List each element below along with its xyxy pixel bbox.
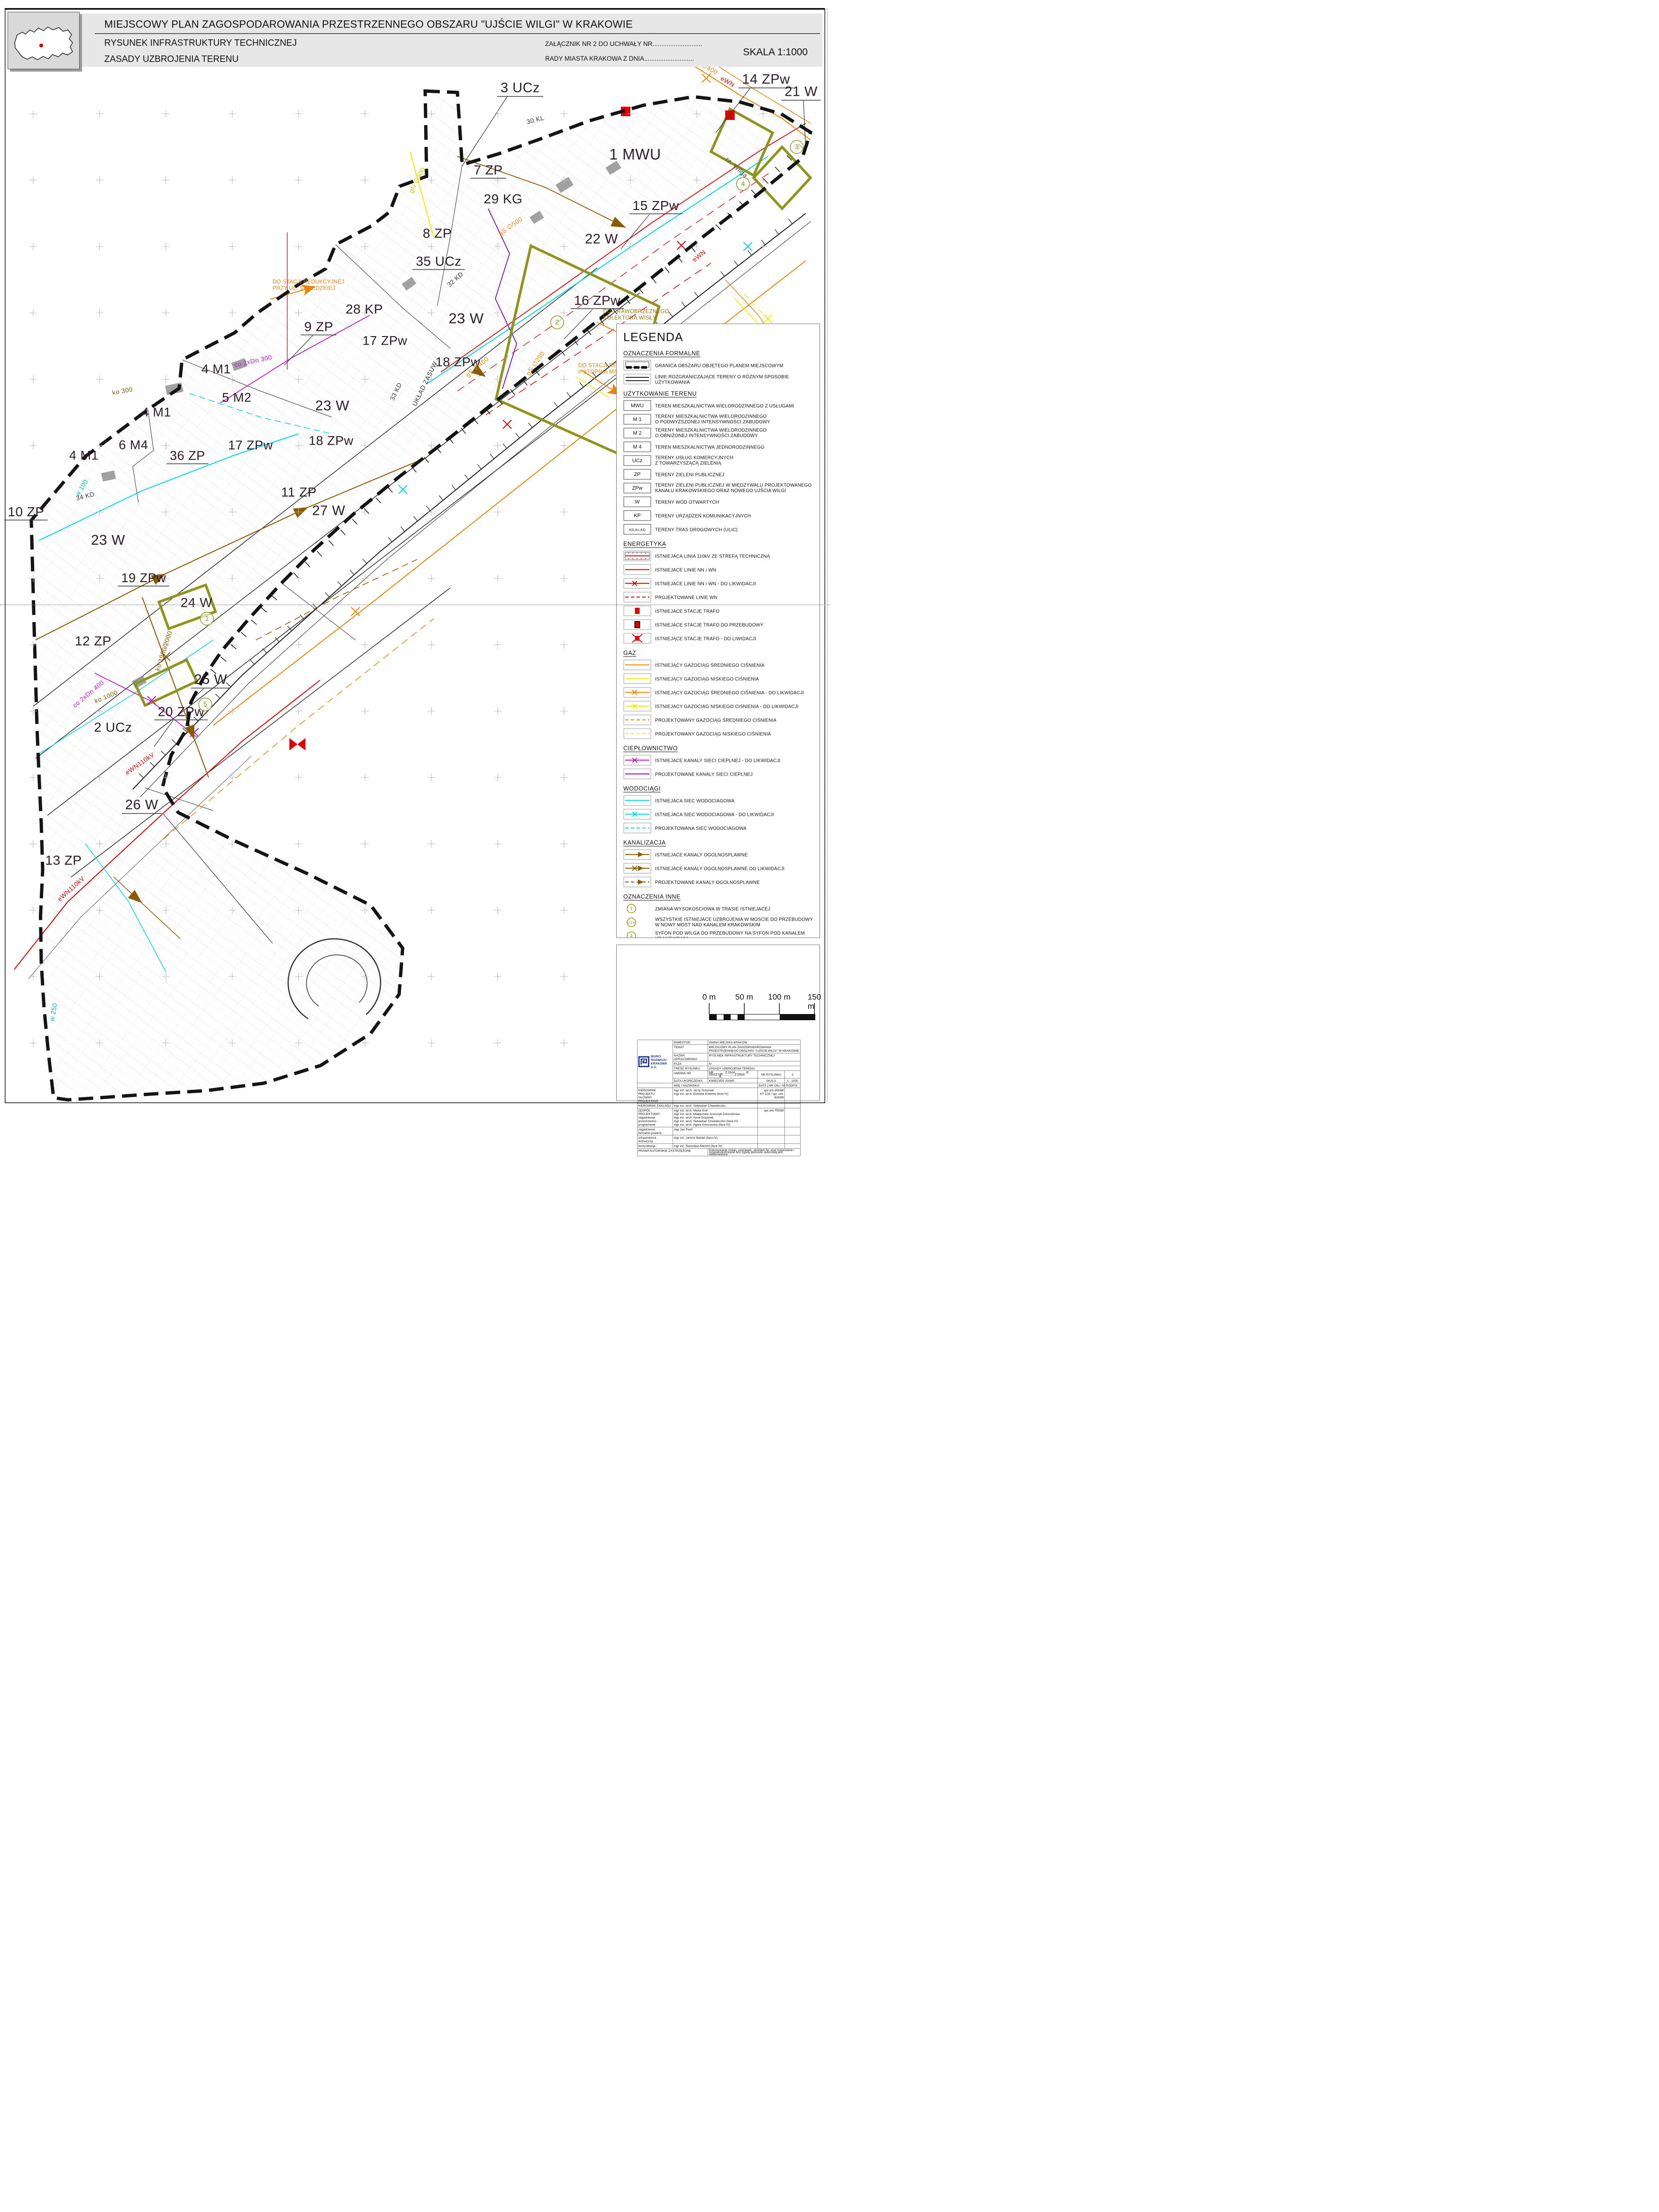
titleblock-cell: BIUROROZWOJUKRAKOWA S.A. bbox=[637, 1040, 673, 1083]
legend-item: PROJEKTOWANE LINIE WN bbox=[623, 592, 815, 604]
titleblock-cell: GMINA MIEJSKA KRAKÓW bbox=[708, 1040, 800, 1045]
legend-item: KPTERENY URZĄDZEŃ KOMUNIKACYJNYCH bbox=[623, 510, 815, 522]
svg-text:W: W bbox=[635, 499, 640, 505]
legend-item: PROJEKTOWANA SIEC WODOCIAGOWA bbox=[623, 823, 815, 835]
titleblock-cell bbox=[757, 1127, 785, 1135]
titleblock-cell bbox=[785, 1127, 801, 1135]
plan-location-dot bbox=[39, 44, 43, 47]
titleblock-panel: 0 m50 m100 m150 m BIUROROZWOJUKRAKOWA S.… bbox=[616, 945, 820, 1101]
legend-item-label: ISTNIEJACE KANALY SIECI CIEPLNEJ - DO LI… bbox=[655, 758, 780, 764]
legend-item: M 1TERENY MIESZKALNICTWA WIELORODZINNEGO… bbox=[623, 414, 815, 426]
titleblock-cell bbox=[757, 1135, 785, 1144]
legend-item: ISTNIEJACE KANALY OGOLNOSPLAWNE bbox=[623, 849, 815, 861]
legend-symbol-line bbox=[623, 755, 651, 767]
legend-symbol-zone-KP: KP bbox=[623, 510, 651, 522]
legend-symbol-sepline bbox=[623, 374, 651, 386]
scale-bar-segments bbox=[709, 1014, 815, 1020]
legend-symbol-line bbox=[623, 550, 651, 563]
titleblock-cell: DATA UKOŃCZENIA bbox=[673, 1079, 708, 1083]
legend-symbol-badge-1: 1 bbox=[623, 903, 651, 915]
titleblock-cell: NR ............ Z DNIA ............R. OR… bbox=[708, 1071, 757, 1079]
legend-symbol-line bbox=[623, 863, 651, 875]
titleblock-cell: mgr Jan Pach bbox=[673, 1127, 757, 1135]
legend-item: MWUTEREN MIESZKALNICTWA WIELORODZINNEGO … bbox=[623, 400, 815, 412]
svg-text:4: 4 bbox=[630, 934, 632, 938]
legend-item-label: PROJEKTOWANY GAZOCIĄG ŚREDNIEGO CIŚNIENI… bbox=[655, 718, 776, 723]
legend-item-label: SYFON POD WILGA DO PRZEBUDOWY NA SYFON P… bbox=[655, 931, 815, 938]
legend-item-label: PROJEKTOWANE KANALY OGOLNOSPLAWNE bbox=[655, 880, 760, 886]
legend-item: WTERENY WÓD OTWARTYCH bbox=[623, 496, 815, 509]
legend-item: ISTNIEJACA SIEC WODOCIAGOWA - DO LIKWIDA… bbox=[623, 809, 815, 821]
titleblock-cell: Dokonywanie zmian, poprawek, skreśleń it… bbox=[708, 1148, 800, 1156]
titleblock-cell bbox=[785, 1108, 801, 1127]
legend-symbol-zone-M 1: M 1 bbox=[623, 414, 651, 426]
legend-item-label: TERENY URZĄDZEŃ KOMUNIKACYJNYCH bbox=[655, 513, 751, 519]
legend-section-title: GAZ bbox=[623, 650, 815, 657]
titleblock-cell: KIEROWNIK PROJEKTU GŁÓWNY PROJEKTANT bbox=[637, 1088, 673, 1104]
titleblock-cell: ZESPÓŁ PROJEKTOWY: zagadnienia przestrze… bbox=[637, 1108, 673, 1127]
titleblock-cell: komunikacja bbox=[637, 1143, 673, 1148]
legend-item: PROJEKTOWANE KANALY OGOLNOSPLAWNE bbox=[623, 877, 815, 889]
legend-item-label: ISTNIEJACY GAZOCIAG NISKIEGO CISNIENIA -… bbox=[655, 704, 799, 710]
titleblock-cell: DATA | NR OIU / NR UPRAWNIEŃ bbox=[757, 1083, 785, 1088]
legend-symbol-line bbox=[623, 795, 651, 807]
scale-bar-tick bbox=[709, 1003, 710, 1014]
scale-bar-tick bbox=[744, 1003, 745, 1014]
legend-item-label: PROJEKTOWANA SIEC WODOCIAGOWA bbox=[655, 826, 747, 832]
header-top-rule bbox=[5, 8, 825, 10]
titleblock-cell bbox=[637, 1083, 673, 1088]
legend-item: ISTNIEJACE KANALY OGOLNOSPLAWNE DO LIKWI… bbox=[623, 863, 815, 875]
krakow-outline bbox=[15, 27, 73, 60]
legend-item: ISTNIEJĄCE STACJE TRAFO - DO LIWIDACJI bbox=[623, 633, 815, 645]
titleblock-cell: KIEROWNIK ZAKŁADU bbox=[637, 1103, 673, 1108]
legend-item: PROJEKTOWANY GAZOCIĄG ŚREDNIEGO CIŚNIENI… bbox=[623, 714, 815, 727]
titleblock-table-wrap: BIUROROZWOJUKRAKOWA S.A.INWESTORGMINA MI… bbox=[637, 1040, 800, 1156]
titleblock-cell bbox=[757, 1143, 785, 1148]
titleblock-cell bbox=[785, 1088, 801, 1104]
titleblock-cell: mgr inż. arch. Jerzy Grzymek mgr inż. ar… bbox=[673, 1088, 757, 1104]
legend-symbol-trafo3 bbox=[623, 633, 651, 645]
titleblock-cell: NR RYSUNKU bbox=[757, 1071, 785, 1079]
legend-symbol-line bbox=[623, 659, 651, 672]
sheet-subtitle-2: ZASADY UZBROJENIA TERENU bbox=[104, 54, 238, 64]
legend-symbol-zone-MWU: MWU bbox=[623, 400, 651, 412]
legend-item-label: ISTNIEJACE LINIE NN i WN bbox=[655, 567, 716, 573]
titleblock-cell: ZASADY UZBROJENIA TERENU bbox=[708, 1066, 800, 1071]
sheet-subtitle-1: RYSUNEK INFRASTRUKTURY TECHNICZNEJ bbox=[104, 38, 297, 48]
legend-item: ISTNIEJACE KANALY SIECI CIEPLNEJ - DO LI… bbox=[623, 755, 815, 767]
legend-item: ISTNIEJACA LINIA 110kV ZE STREFĄ TECHNIC… bbox=[623, 550, 815, 563]
legend-item: ISTNIEJACE STACJE TRAFO DO PRZEBUDOWY bbox=[623, 619, 815, 631]
legend-item: ISTNIEJACA SIEC WODOCIAGOWA bbox=[623, 795, 815, 807]
titleblock-cell bbox=[757, 1103, 785, 1108]
legend-item-label: TERENY WÓD OTWARTYCH bbox=[655, 500, 719, 505]
legend-item: ISTNIEJACE LINIE NN i WN - DO LIKWIDACJI bbox=[623, 578, 815, 590]
legend-item-label: ISTNIEJĄCY GAZOCIĄG ŚREDNIEGO CIŚNIENIA … bbox=[655, 690, 804, 696]
titleblock-cell: TEMAT bbox=[673, 1045, 708, 1053]
legend-symbol-zone-W: W bbox=[623, 496, 651, 509]
legend-item-label: ISTNIEJACE STACJE TRAFO DO PRZEBUDOWY bbox=[655, 622, 764, 628]
legend-item: UCzTERENY USŁUG KOMERCYJNYCH Z TOWARZYSZ… bbox=[623, 455, 815, 467]
legend-symbol-trafo2 bbox=[623, 619, 651, 631]
legend-symbol-line bbox=[623, 728, 651, 740]
legend-section-title: ENERGETYKA bbox=[623, 541, 815, 548]
legend-symbol-boundary bbox=[623, 360, 651, 372]
titleblock-cell: TREŚĆ RYSUNKU bbox=[673, 1066, 708, 1071]
legend-symbol-line bbox=[623, 564, 651, 576]
legend-item-label: ISTNIEJACE STACJE TRAFO bbox=[655, 609, 720, 614]
legend-symbol-line bbox=[623, 578, 651, 590]
legend-item: 4SYFON POD WILGA DO PRZEBUDOWY NA SYFON … bbox=[623, 931, 815, 938]
legend-panel: LEGENDA OZNACZENIA FORMALNEGRANICA OBSZA… bbox=[616, 324, 820, 938]
legend-item: M 4TEREN MIESZKALNICTWA JEDNORODZINNEGO bbox=[623, 441, 815, 454]
scale-text: SKALA 1:1000 bbox=[743, 46, 808, 58]
titleblock-cell: infrastruktura techniczna bbox=[637, 1135, 673, 1144]
legend-symbol-badge-2,3,5: 2,3,5 bbox=[623, 917, 651, 929]
plan-sheet: 3 UCz14 ZPw21 W1 MWU7 ZP29 KG15 ZPw8 ZP2… bbox=[0, 0, 829, 1106]
sheet-title: MIEJSCOWY PLAN ZAGOSPODAROWANIA PRZESTRZ… bbox=[104, 18, 633, 30]
legend-symbol-line bbox=[623, 687, 651, 699]
svg-text:ZP: ZP bbox=[634, 472, 640, 477]
titleblock-cell: mgr inż. arch. Marta Król mgr inż. arch.… bbox=[673, 1108, 757, 1127]
legend-symbol-badge-4: 4 bbox=[623, 931, 651, 938]
legend-section-title: WODOCIĄGI bbox=[623, 786, 815, 793]
titleblock-cell: 2 bbox=[785, 1071, 801, 1079]
svg-text:KG,KL,KD: KG,KL,KD bbox=[629, 528, 646, 532]
titleblock-cell: PRAWA AUTORSKIE ZASTRZEŻONE bbox=[637, 1148, 708, 1156]
attachment-line-1: ZAŁĄCZNIK NR 2 DO UCHWAŁY NR............… bbox=[545, 40, 702, 48]
scale-bar-label: 50 m bbox=[735, 993, 753, 1002]
titleblock-cell: IMIĘ I NAZWISKO: bbox=[673, 1083, 757, 1088]
legend-item: M 2TERENY MIESZ­KALNICTWA WIELORODZINNEG… bbox=[623, 428, 815, 440]
svg-text:M 2: M 2 bbox=[633, 430, 641, 436]
scale-bar-tick bbox=[814, 1003, 815, 1014]
legend-symbol-line bbox=[623, 768, 651, 781]
titleblock-cell bbox=[785, 1135, 801, 1144]
legend-item-label: PROJEKTOWANY GAZOCIĄG NISKIEGO CIŚNIENIA bbox=[655, 731, 771, 737]
legend-item-label: ISTNIEJACA LINIA 110kV ZE STREFĄ TECHNIC… bbox=[655, 554, 770, 559]
legend-symbol-zone-ZPw: ZPw bbox=[623, 483, 651, 495]
titleblock-cell: mgr inż. Janusz Bardel (faza IV) bbox=[673, 1135, 757, 1144]
legend-section-title: KANALIZACJA bbox=[623, 840, 815, 847]
svg-text:UCz: UCz bbox=[632, 458, 642, 464]
titleblock-cell: FAZA bbox=[673, 1061, 708, 1066]
legend-item-label: ISTNIEJACE LINIE NN i WN - DO LIKWIDACJI bbox=[655, 581, 756, 587]
svg-text:ZPw: ZPw bbox=[632, 485, 643, 491]
titleblock-cell: PODPIS bbox=[785, 1083, 801, 1088]
legend-symbol-zone-M 4: M 4 bbox=[623, 441, 651, 454]
legend-item-label: TERENY ZIELENI PUBLICZNEJ W MIĘDZYWALU P… bbox=[655, 483, 811, 494]
svg-text:2,3,5: 2,3,5 bbox=[628, 922, 635, 925]
svg-text:1: 1 bbox=[630, 906, 632, 911]
titleblock-cell: INWESTOR bbox=[673, 1040, 708, 1045]
legend-item: LINIE ROZGRANICZAJĄCE TERENY O RÓŻNYM SP… bbox=[623, 374, 815, 386]
titleblock-cell: KWIECIEŃ 2006R. bbox=[708, 1079, 757, 1083]
legend-item-label: ZMIANA WYSOKOSCIOWA W TRASIE ISTNIEJACEJ bbox=[655, 906, 770, 912]
legend-section-title: OZNACZENIA FORMALNE bbox=[623, 350, 815, 357]
scale-bar-label: 100 m bbox=[768, 993, 790, 1002]
header-separator-rule bbox=[95, 33, 820, 34]
legend-symbol-zone-KG,KL,KD: KG,KL,KD bbox=[623, 524, 651, 536]
legend-symbol-zone-M 2: M 2 bbox=[623, 428, 651, 440]
titleblock-cell: SKALA bbox=[757, 1079, 785, 1083]
legend-item: ISTNIEJACE LINIE NN i WN bbox=[623, 564, 815, 576]
legend-item-label: WSZYSTKIE ISTNIEJACE UZBROJENIA W MOSCIE… bbox=[655, 917, 813, 928]
legend-section-title: CIEPŁOWNICTWO bbox=[623, 745, 815, 752]
legend-section-title: UŻYTKOWANIE TERENU bbox=[623, 391, 815, 398]
legend-title: LEGENDA bbox=[623, 330, 815, 344]
titleblock-cell: NAZWA OPRACOWANIA bbox=[673, 1053, 708, 1061]
svg-text:KP: KP bbox=[634, 513, 641, 519]
titleblock-cell: mgr inż. Stanisław Albricht (faza IV) bbox=[673, 1143, 757, 1148]
titleblock-cell bbox=[785, 1143, 801, 1148]
legend-item-label: ISTNIEJACE KANALY OGOLNOSPLAWNE DO LIKWI… bbox=[655, 866, 784, 872]
legend-item-label: ISTNIEJĄCE STACJE TRAFO - DO LIWIDACJI bbox=[655, 636, 756, 642]
titleblock-cell: MIEJSCOWY PLAN ZAGOSPODAROWANIA PRZESTRZ… bbox=[708, 1045, 800, 1053]
titleblock-cell: UMOWA NR bbox=[673, 1071, 708, 1079]
legend-symbol-line bbox=[623, 673, 651, 686]
legend-item-label: LINIE ROZGRANICZAJĄCE TERENY O RÓŻNYM SP… bbox=[655, 374, 815, 385]
legend-item: PROJEKTOWANE KANALY SIECI CIEPLNEJ bbox=[623, 768, 815, 781]
legend-item: PROJEKTOWANY GAZOCIĄG NISKIEGO CIŚNIENIA bbox=[623, 728, 815, 740]
legend-item-label: TERENY ZIELENI PUBLICZNEJ bbox=[655, 472, 724, 478]
titleblock-table: BIUROROZWOJUKRAKOWA S.A.INWESTORGMINA MI… bbox=[637, 1040, 801, 1156]
svg-text:M 1: M 1 bbox=[633, 417, 641, 422]
legend-item: ISTNIEJĄCY GAZOCIĄG ŚREDNIEGO CIŚNIENIA … bbox=[623, 687, 815, 699]
legend-section-title: OZNACZENIA INNE bbox=[623, 894, 815, 901]
legend-item-label: TEREN MIESZKALNICTWA JEDNORODZINNEGO bbox=[655, 445, 765, 450]
legend-symbol-trafo1 bbox=[623, 605, 651, 618]
legend-item: ISTNIEJĄCY GAZOCIĄG NISKIEGO CIŚNIENIA bbox=[623, 673, 815, 686]
legend-symbol-line bbox=[623, 877, 651, 889]
legend-symbol-zone-UCz: UCz bbox=[623, 455, 651, 467]
legend-item-label: TERENY MIESZ­KALNICTWA WIELORODZINNEGO O… bbox=[655, 428, 766, 439]
titleblock-cell: IV bbox=[708, 1061, 800, 1066]
titleblock-cell: upr.urb.755/88 bbox=[757, 1108, 785, 1127]
legend-item-label: ISTNIEJĄCY GAZOCIĄG ŚREDNIEGO CIŚNIENIA bbox=[655, 663, 765, 668]
titleblock-cell: zagadnienia formalno-prawne bbox=[637, 1127, 673, 1135]
titleblock-cell: 1 : 1000 bbox=[785, 1079, 801, 1083]
legend-item: GRANICA OBSZARU OBJĘTEGO PLANEM MIEJSCOW… bbox=[623, 360, 815, 372]
legend-item-label: PROJEKTOWANE KANALY SIECI CIEPLNEJ bbox=[655, 772, 753, 777]
titleblock-cell: RYSUNEK INFRASTRUKTURY TECHNICZNEJ bbox=[708, 1053, 800, 1061]
legend-item-label: ISTNIEJĄCY GAZOCIĄG NISKIEGO CIŚNIENIA bbox=[655, 676, 759, 682]
titleblock-cell: mgr inż. arch. Sebastian Chwedeczko bbox=[673, 1103, 757, 1108]
legend-symbol-line bbox=[623, 809, 651, 821]
legend-item-label: TERENY MIESZKALNICTWA WIELORODZINNEGO O … bbox=[655, 414, 770, 425]
svg-text:MWU: MWU bbox=[631, 403, 644, 409]
legend-item-label: TERENY TRAS DROGOWYCH (ULIC) bbox=[655, 527, 738, 533]
legend-symbol-line bbox=[623, 592, 651, 604]
attachment-line-2: RADY MIASTA KRAKOWA Z DNIA..............… bbox=[545, 55, 694, 63]
legend-symbol-zone-ZP: ZP bbox=[623, 469, 651, 481]
legend-item-label: PROJEKTOWANE LINIE WN bbox=[655, 595, 718, 601]
krakow-locator-minimap bbox=[8, 12, 80, 69]
scale-bar-tick bbox=[779, 1003, 780, 1014]
legend-item: ISTNIEJACY GAZOCIAG NISKIEGO CISNIENIA -… bbox=[623, 701, 815, 713]
legend-item-label: TERENY USŁUG KOMERCYJNYCH Z TOWARZYSZĄCĄ… bbox=[655, 455, 733, 466]
legend-item: ISTNIEJACE STACJE TRAFO bbox=[623, 605, 815, 618]
legend-item: KG,KL,KDTERENY TRAS DROGOWYCH (ULIC) bbox=[623, 524, 815, 536]
legend-item-label: ISTNIEJACA SIEC WODOCIAGOWA bbox=[655, 798, 735, 804]
legend-item: ZPwTERENY ZIELENI PUBLICZNEJ W MIĘDZYWAL… bbox=[623, 483, 815, 495]
legend-symbol-line bbox=[623, 823, 651, 835]
legend-symbol-line bbox=[623, 714, 651, 727]
legend-item-label: ISTNIEJACE KANALY OGOLNOSPLAWNE bbox=[655, 852, 748, 858]
legend-item: ISTNIEJĄCY GAZOCIĄG ŚREDNIEGO CIŚNIENIA bbox=[623, 659, 815, 672]
legend-item: ZPTERENY ZIELENI PUBLICZNEJ bbox=[623, 469, 815, 481]
legend-item: 1ZMIANA WYSOKOSCIOWA W TRASIE ISTNIEJACE… bbox=[623, 903, 815, 915]
legend-item-label: TEREN MIESZKALNICTWA WIELORODZINNEGO Z U… bbox=[655, 403, 794, 409]
titleblock-cell: upr.urb.163/88 KT-128 / upr. urb. 828/89 bbox=[757, 1088, 785, 1104]
legend-symbol-line bbox=[623, 701, 651, 713]
scale-bar-label: 0 m bbox=[702, 993, 716, 1002]
legend-item: 2,3,5WSZYSTKIE ISTNIEJACE UZBROJENIA W M… bbox=[623, 917, 815, 929]
titleblock-cell bbox=[785, 1103, 801, 1108]
legend-item-label: ISTNIEJACA SIEC WODOCIAGOWA - DO LIKWIDA… bbox=[655, 812, 774, 818]
legend-items: OZNACZENIA FORMALNEGRANICA OBSZARU OBJĘT… bbox=[623, 350, 815, 938]
svg-text:M 4: M 4 bbox=[633, 444, 641, 450]
legend-symbol-line bbox=[623, 849, 651, 861]
legend-item-label: GRANICA OBSZARU OBJĘTEGO PLANEM MIEJSCOW… bbox=[655, 363, 784, 369]
